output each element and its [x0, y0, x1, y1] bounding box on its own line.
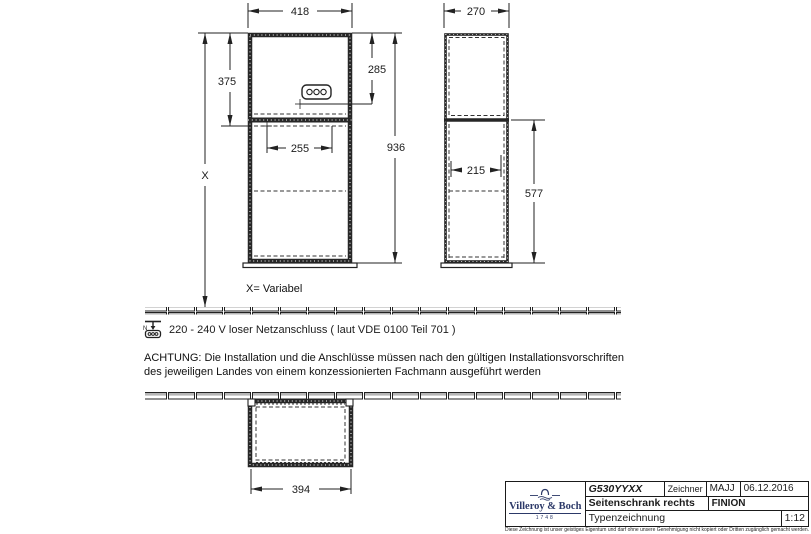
side-dimensions [444, 3, 545, 263]
brand-year: 1748 [536, 515, 555, 521]
front-plinth [243, 263, 357, 268]
title-block-row-2: Seitenschrank rechts FINION [586, 497, 808, 511]
dim-side-lower-height: 577 [525, 188, 543, 200]
title-block-grid: G530YYXX Zeichner MAJJ 06.12.2016 Seiten… [586, 482, 808, 526]
document-type: Typenzeichnung [586, 511, 782, 527]
brand-logo: Villeroy & Boch 1748 [506, 482, 586, 526]
drawing-title: Seitenschrank rechts [586, 497, 709, 510]
dim-front-width: 418 [291, 6, 309, 18]
dim-front-socket: 285 [368, 64, 386, 76]
title-block: Villeroy & Boch 1748 G530YYXX Zeichner M… [505, 481, 809, 527]
power-connection-icon: N [142, 320, 164, 339]
wall-section-line-lower [145, 392, 621, 400]
warning-line-2: des jeweiligen Landes von einem konzessi… [144, 366, 624, 380]
villeroy-boch-crest-icon [526, 488, 564, 501]
title-block-row-1: G530YYXX Zeichner MAJJ 06.12.2016 [586, 482, 808, 497]
dim-side-width: 270 [467, 6, 485, 18]
cabinet-drawing: 418 375 285 936 X 255 270 215 577 [0, 0, 811, 534]
side-view-cabinet [441, 35, 512, 268]
installation-warning: ACHTUNG: Die Installation und die Anschl… [144, 352, 624, 379]
drawing-scale: 1:12 [782, 511, 808, 527]
dim-front-upper-left: 375 [218, 76, 236, 88]
warning-line-1: ACHTUNG: Die Installation und die Anschl… [144, 352, 624, 366]
drawing-date: 06.12.2016 [741, 482, 808, 496]
dim-front-total: 936 [387, 142, 405, 154]
drawer-initials: MAJJ [707, 482, 741, 496]
dim-front-inner-width: 255 [291, 143, 309, 155]
plan-view-cabinet [248, 399, 353, 465]
drawer-label: Zeichner [665, 482, 707, 496]
dim-plan-width: 394 [292, 484, 310, 496]
brand-name: Villeroy & Boch [509, 501, 581, 514]
dim-front-variable: X [201, 170, 209, 182]
side-plinth [441, 263, 512, 268]
power-note-row: N 220 - 240 V loser Netzanschluss ( laut… [142, 320, 456, 339]
part-number: G530YYXX [586, 482, 665, 496]
variable-note: X= Variabel [246, 283, 302, 295]
title-block-row-3: Typenzeichnung 1:12 [586, 511, 808, 527]
wall-section-line-upper [145, 307, 621, 315]
power-socket-symbol [302, 85, 331, 99]
technical-drawing-sheet: 418 375 285 936 X 255 270 215 577 [0, 0, 811, 534]
power-note: 220 - 240 V loser Netzanschluss ( laut V… [169, 324, 456, 336]
dim-side-inner-width: 215 [467, 165, 485, 177]
copyright-note: Diese Zeichnung ist unser geistiges Eige… [505, 527, 809, 533]
series-name: FINION [709, 497, 808, 510]
plan-seal-edges [256, 404, 345, 463]
side-hidden-edges [449, 38, 504, 259]
plan-hidden-edges [256, 407, 345, 460]
